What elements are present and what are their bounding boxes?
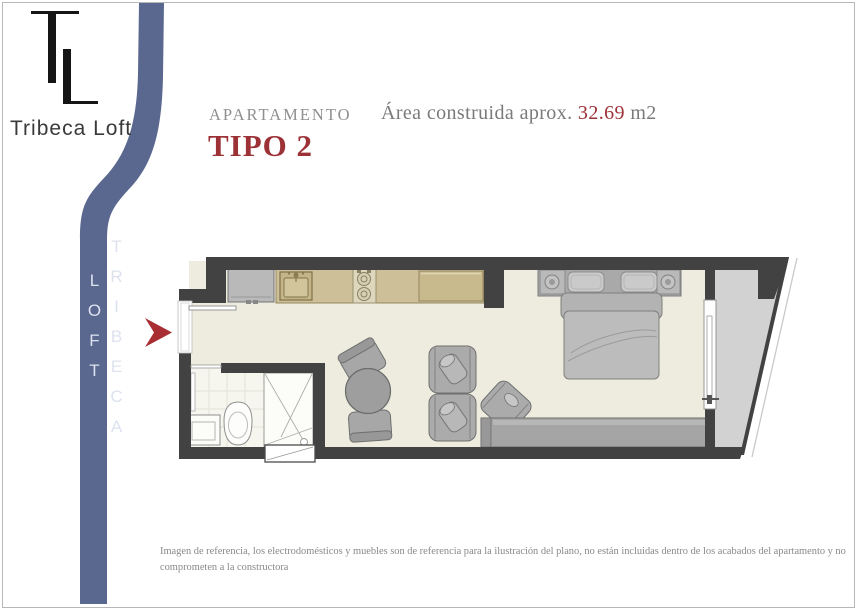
wall-left-lower [179,353,191,453]
armchair [429,346,476,393]
floor-plan-canvas [3,3,854,607]
area-unit: m2 [630,102,656,124]
ribbon-word-2: LOFT [83,271,105,447]
brand-name: Tribeca Loft [10,117,132,141]
dining-chair [348,410,392,443]
wall-bathroom-right [313,371,325,449]
dining-table [346,369,391,414]
bed [561,293,662,379]
wall-top-right-block [758,257,789,299]
wall-divider [484,263,504,308]
wall-window-top [705,263,715,302]
area-value: 32.69 [578,102,625,124]
kitchen [228,265,484,304]
wall-left-column [206,257,226,303]
wall-bottom [179,447,744,459]
stove [353,269,376,303]
wall-bathroom-top [221,363,325,373]
armchair [429,394,476,441]
bathroom-door [265,445,315,462]
ribbon-word-1: TRIBECA [107,237,126,447]
fridge [228,265,274,304]
shower [264,373,313,447]
logo-monogram [31,11,98,104]
nightstand-left [540,270,565,294]
ribbon-text: TRIBECA LOFT [83,237,127,447]
apartment-label: APARTAMENTO [209,105,352,125]
kitchen-cabinet [419,271,483,301]
kitchen-sink [280,272,312,300]
sofa [481,418,708,447]
bathroom [187,368,313,447]
area-label: Área construida aprox. [381,102,573,124]
disclaimer-text: Imagen de referencia, los electrodomésti… [160,544,855,575]
nightstand-right [657,270,680,294]
floor-plan [145,257,797,462]
entrance-arrow-icon [145,318,172,347]
apartment-type-title: TIPO 2 [208,128,313,164]
area-line: Área construida aprox. 32.69 m2 [381,102,657,125]
toilet [224,402,252,445]
entrance-door-leaf [189,306,236,310]
flyer-page: Tribeca Loft TRIBECA LOFT APARTAMENTO TI… [2,2,855,608]
bathroom-door-line [191,365,221,368]
bathroom-mirror [191,373,195,411]
